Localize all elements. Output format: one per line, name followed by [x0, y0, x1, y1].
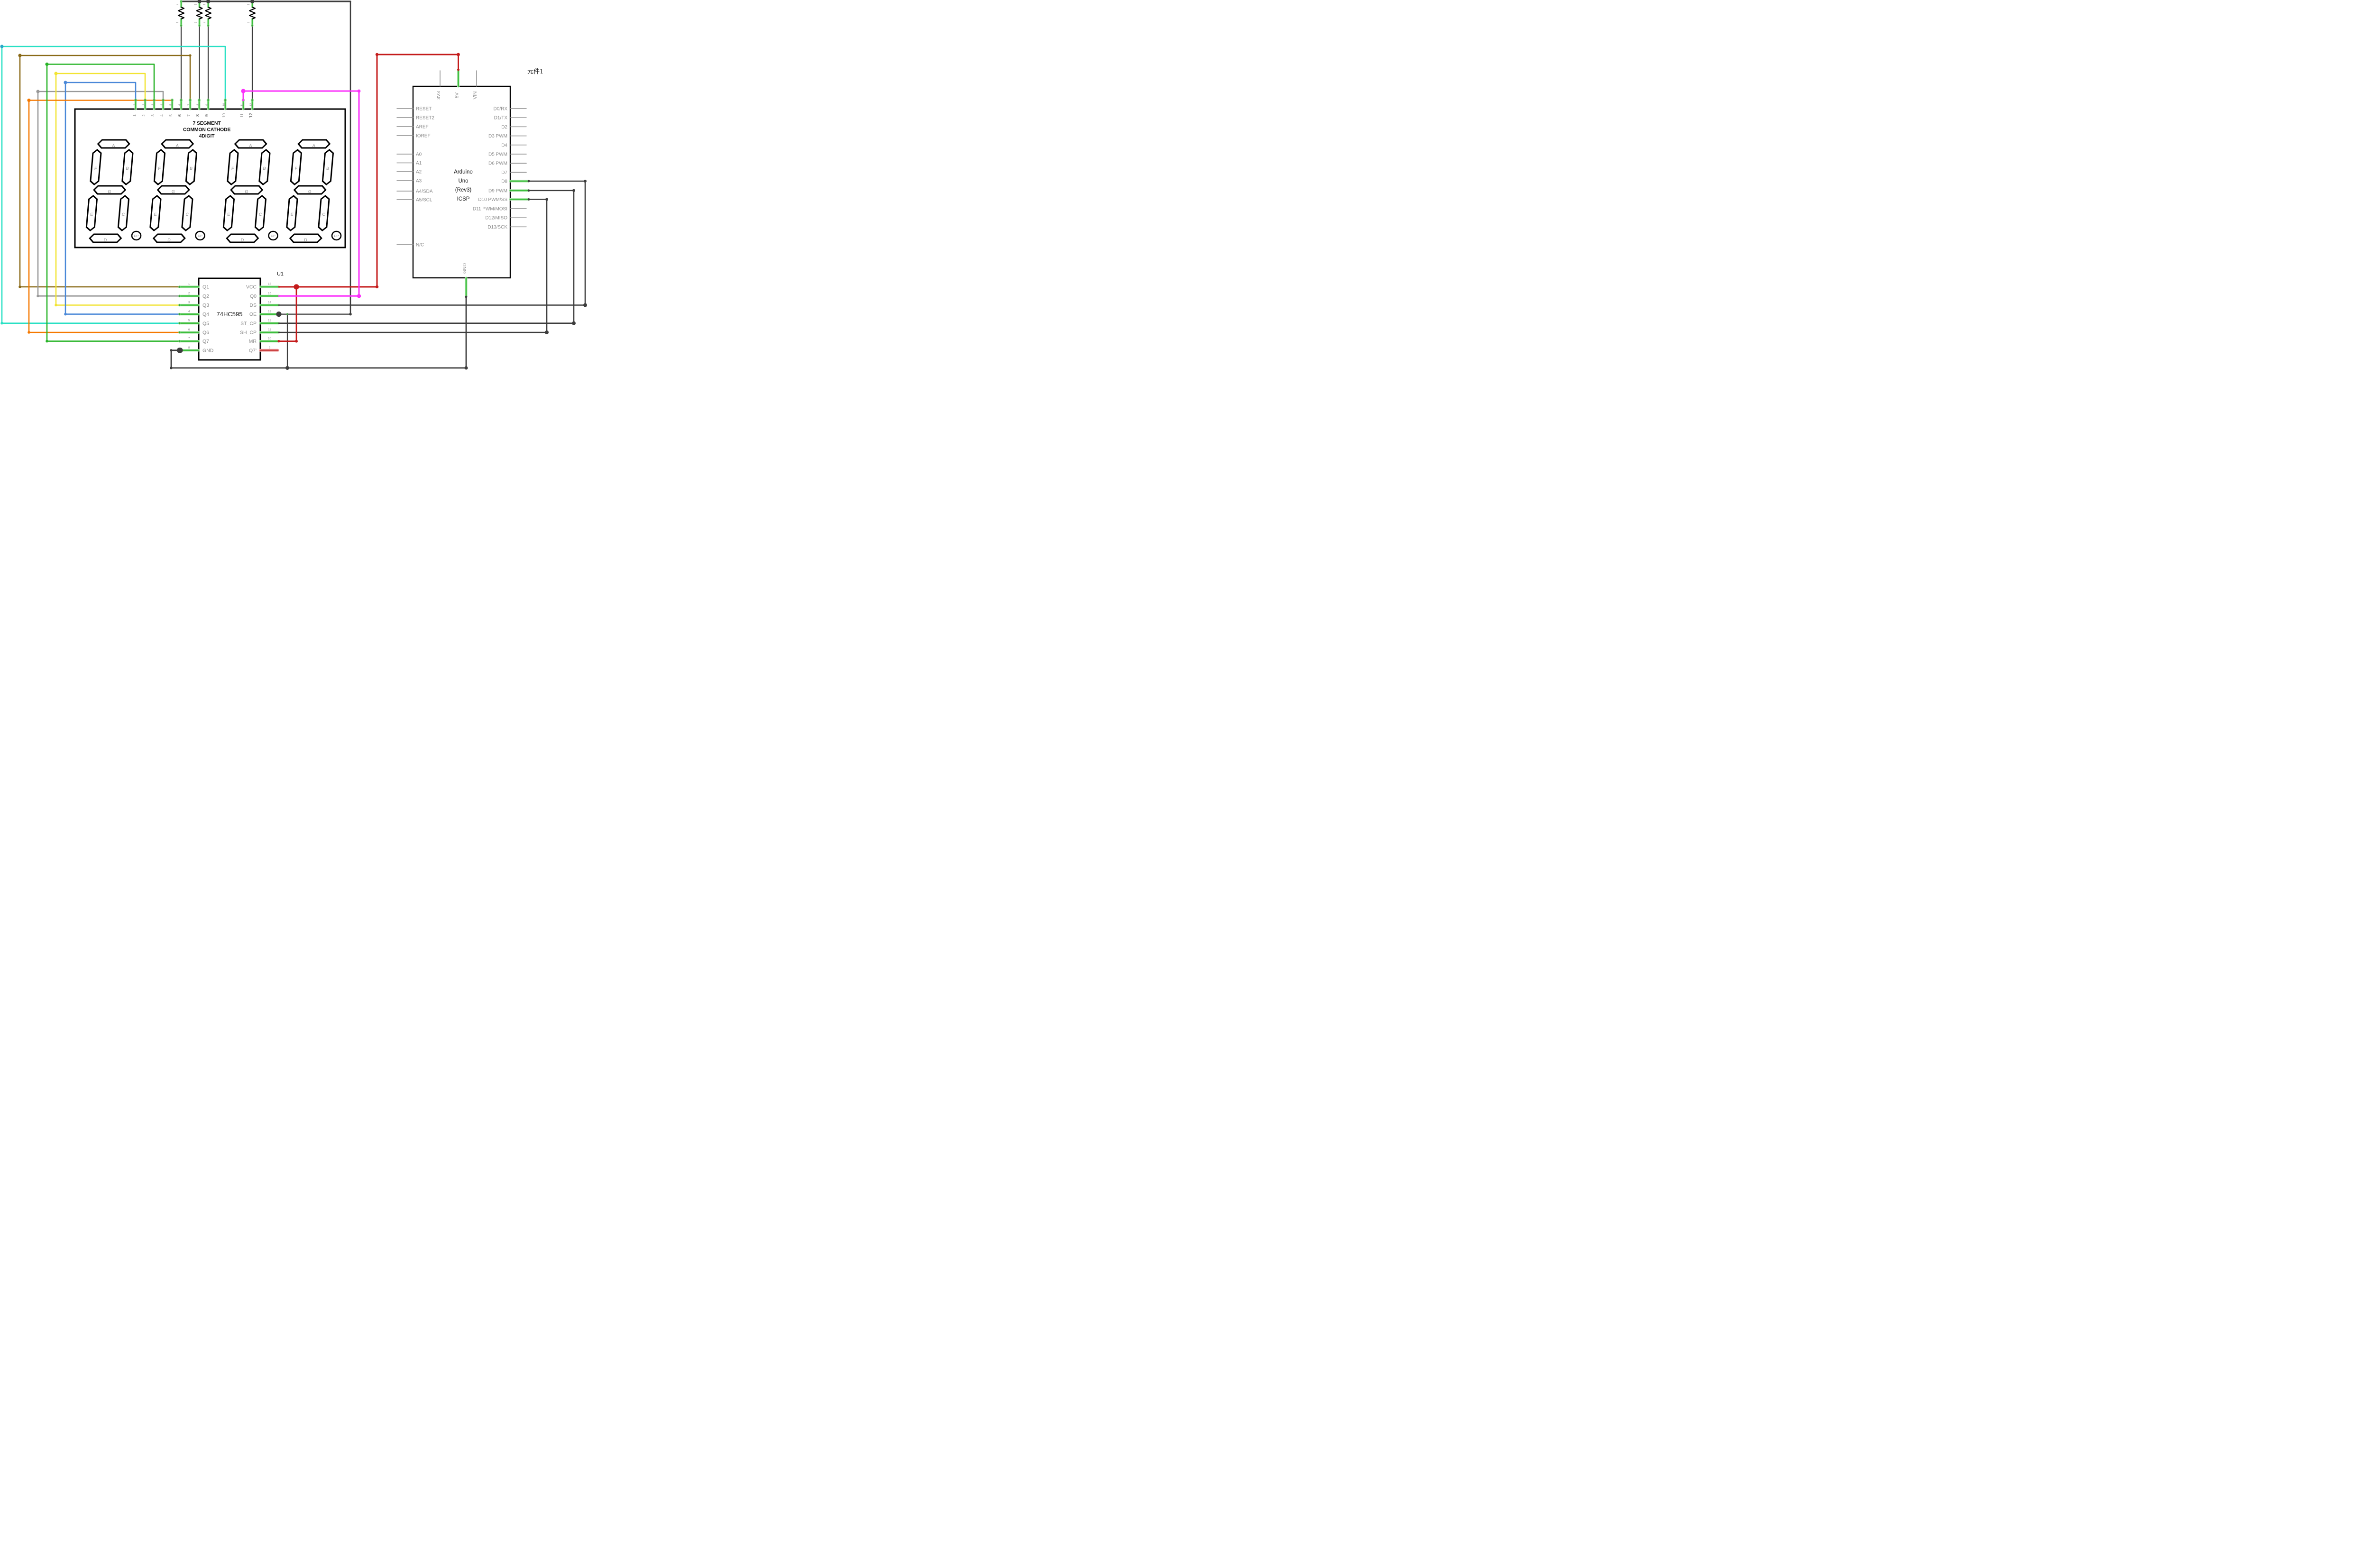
junction-dot [357, 294, 361, 298]
junction-dot [37, 295, 39, 298]
ic-pin-label-GND: GND [202, 348, 214, 353]
junction-dot [179, 322, 180, 324]
junction-dot [179, 304, 180, 306]
arduino-pin-label-D7: D7 [501, 170, 507, 175]
junction-dot [189, 54, 191, 56]
ic-pin-label-Q1: Q1 [202, 284, 209, 290]
arduino-pin-label-A5/SCL: A5/SCL [416, 198, 432, 203]
dp-label: DP [134, 235, 139, 238]
arduino-title-line: ICSP [457, 196, 470, 202]
display-title-line: COMMON CATHODE [183, 127, 230, 132]
display-pin-top-dot [153, 99, 155, 101]
junction-dot [64, 81, 67, 84]
arduino-pin-label-D0/RX: D0/RX [494, 107, 508, 112]
segment-label-B: B [263, 166, 266, 171]
ic-pin-number: 10 [268, 337, 272, 340]
ic-pin-label-Q0: Q0 [250, 293, 257, 299]
junction-dot [36, 90, 39, 93]
junction-dot [180, 0, 182, 2]
arduino-title-line: Arduino [454, 169, 473, 175]
dp-label: DP [198, 235, 202, 238]
segment-label-B: B [190, 166, 193, 171]
display-pin-number-inner: 7 [187, 114, 191, 117]
junction-dot [170, 349, 172, 351]
ic-pin-number: 8 [188, 346, 190, 349]
junction-dot [286, 313, 288, 315]
junction-dot [179, 331, 180, 333]
ic-pin-label-Q3: Q3 [202, 303, 209, 308]
junction-dot [457, 69, 459, 71]
segment-label-G: G [308, 189, 312, 194]
display-pin-top-dot [189, 99, 191, 101]
junction-dot [545, 330, 549, 334]
ic-pin-label-Q7': Q7' [249, 348, 257, 353]
arduino-pin-label-D8: D8 [501, 179, 507, 184]
junction-dot [170, 367, 173, 369]
ic-pin-label-Q2: Q2 [202, 293, 209, 299]
arduino-pin-label-A2: A2 [416, 170, 422, 175]
arduino-pin-label-A1: A1 [416, 161, 422, 166]
schematic-canvas: ABCDEFGDPABCDEFGDPABCDEFGDPABCDEFGDP 7 S… [0, 0, 593, 392]
ic-pin-number: 12 [268, 319, 272, 322]
junction-dot [464, 366, 468, 369]
display-pin-number-inner: 4 [160, 114, 164, 117]
junction-dot [572, 189, 575, 192]
resistor-pin-number: 1 [248, 3, 250, 5]
arduino-pin-label-D4: D4 [501, 143, 507, 148]
arduino-pin-label-A3: A3 [416, 179, 422, 184]
arduino-pin-label-IOREF: IOREF [416, 134, 431, 139]
ic-pin-number: 16 [268, 283, 272, 286]
dp-label: DP [271, 235, 276, 238]
junction-dot [376, 53, 378, 56]
arduino-pin-label-D2: D2 [501, 125, 507, 130]
junction-dot [295, 340, 298, 343]
junction-dot [583, 303, 587, 307]
arduino-pin-label-GND: GND [462, 263, 468, 274]
junction-dot [457, 53, 460, 56]
junction-dot [358, 90, 361, 93]
junction-dot [27, 99, 30, 102]
dp-label: DP [334, 235, 339, 238]
display-pin-top-dot [171, 99, 173, 101]
display-pin-number-inner: 12 [248, 113, 253, 118]
ic-pin-number: 4 [188, 310, 190, 313]
display-pin-top-dot [135, 99, 137, 101]
display-pin-top-dot [162, 99, 164, 101]
junction-dot [179, 313, 180, 315]
display-pin-number-inner: 8 [195, 114, 200, 117]
resistor-body[interactable] [197, 7, 202, 19]
display-pin-number-outer: 1 [133, 104, 136, 106]
arduino-pin-label-D12/MISO: D12/MISO [485, 216, 507, 221]
junction-dot [179, 295, 180, 297]
junction-dot [251, 25, 253, 26]
resistor-body[interactable] [249, 7, 255, 19]
display-pin-number-inner: 10 [222, 113, 226, 118]
display-pin-number-outer: 11 [240, 103, 244, 106]
segment-label-B: B [126, 166, 129, 171]
arduino-pin-label-D5 PWM: D5 PWM [488, 152, 507, 157]
ic-pin-number: 7 [188, 337, 190, 340]
arduino-pin-label-D11 PWM/MOSI: D11 PWM/MOSI [473, 207, 507, 212]
display-pin-number-outer: 7 [187, 104, 191, 106]
display-pin-number-outer: 4 [160, 104, 164, 106]
display-pin-number-outer: 2 [142, 104, 146, 106]
junction-dot [46, 340, 48, 343]
arduino-pin-label-AREF: AREF [416, 125, 429, 130]
segment-label-A: A [112, 143, 115, 148]
ic-pin-number: 13 [268, 310, 272, 313]
component-title: 元件1 [527, 66, 543, 75]
ic-pin-number: 9 [269, 346, 271, 349]
ic-designator: U1 [277, 271, 284, 277]
arduino-pin-label-VIN: VIN [473, 92, 478, 100]
junction-dot [277, 340, 280, 342]
arduino-pin-label-N/C: N/C [416, 243, 424, 248]
ic-pin-number: 1 [188, 283, 190, 286]
segment-label-E: E [154, 212, 157, 217]
resistor-pin-number: 1 [203, 3, 206, 5]
display-pin-number-inner: 11 [240, 113, 244, 118]
segment-label-G: G [108, 189, 111, 194]
arduino-pin-label-RESET2: RESET2 [416, 116, 434, 121]
ic-part-number: 74HC595 [217, 311, 243, 318]
ic-pin-number: 14 [268, 301, 272, 304]
arduino-pin-label-3V3: 3V3 [436, 91, 441, 100]
ic-pin-label-SH_CP: SH_CP [240, 330, 257, 336]
display-pin-number-outer: 10 [222, 103, 226, 106]
display-pin-number-inner: 3 [151, 114, 155, 117]
resistor-pin-number: 2 [195, 21, 198, 23]
ic-pin-label-Q5: Q5 [202, 321, 209, 326]
junction-dot [179, 340, 180, 342]
segment-label-E: E [90, 212, 93, 217]
arduino-pin-label-D3 PWM: D3 PWM [488, 134, 507, 139]
display-pin-number-outer: 6 [178, 104, 182, 106]
resistor-body[interactable] [178, 7, 184, 19]
junction-dot [55, 304, 57, 307]
junction-dot [572, 321, 576, 325]
resistor-pin-number: 2 [176, 3, 179, 5]
ic-pin-label-Q4: Q4 [202, 312, 209, 317]
display-pin-number-inner: 5 [169, 114, 173, 117]
ic-pin-label-ST_CP: ST_CP [240, 321, 257, 326]
resistor-pin-number: 2 [248, 21, 250, 23]
junction-dot [465, 296, 468, 298]
display-pin-number-outer: 3 [151, 104, 155, 106]
ic-pin-number: 3 [188, 301, 190, 304]
display-pin-top-dot [144, 99, 146, 101]
display-pin-number-outer: 12 [249, 103, 253, 106]
junction-dot [584, 180, 587, 183]
junction-dot [0, 45, 3, 48]
junction-dot [18, 54, 21, 57]
junction-dot [376, 285, 378, 288]
junction-dot [206, 0, 210, 3]
display-pin-top-dot [251, 99, 253, 101]
resistor-pin-number: 1 [195, 3, 198, 5]
arduino-pin-label-A4/SDA: A4/SDA [416, 189, 433, 194]
resistor-pin-number: 1 [176, 21, 179, 23]
segment-label-E: E [227, 212, 230, 217]
resistor-pin-number: 2 [203, 21, 206, 23]
arduino-pin-label-D10 PWM/SS: D10 PWM/SS [478, 197, 507, 202]
junction-dot [207, 25, 209, 26]
display-title-line: 7 SEGMENT [193, 120, 221, 126]
junction-dot [64, 313, 67, 316]
ic-pin-number: 11 [268, 328, 271, 331]
display-pin-number-inner: 1 [132, 114, 137, 117]
segment-label-A: A [249, 143, 252, 148]
arduino-pin-label-D1/TX: D1/TX [494, 116, 508, 121]
ic-pin-number: 2 [188, 292, 190, 295]
segment-label-B: B [326, 166, 330, 171]
junction-dot [199, 25, 200, 26]
resistor-body[interactable] [205, 7, 211, 19]
junction-dot [242, 99, 245, 101]
junction-dot [349, 313, 352, 316]
display-pin-top-dot [180, 99, 182, 101]
display-pin-number-inner: 9 [204, 114, 209, 117]
display-pin-number-outer: 5 [169, 104, 173, 106]
display-pin-top-dot [224, 99, 226, 101]
display-pin-top-dot [198, 99, 200, 101]
display-pin-top-dot [207, 99, 209, 101]
ic-pin-label-DS: DS [249, 303, 257, 308]
gnd-lead-junction-dot [177, 348, 182, 353]
junction-dot [241, 89, 245, 93]
display-pin-number-outer: 9 [205, 104, 209, 106]
junction-dot [18, 285, 21, 288]
junction-dot [250, 0, 254, 3]
segment-label-G: G [245, 189, 248, 194]
arduino-pin-label-RESET: RESET [416, 107, 432, 112]
junction-dot [294, 284, 299, 289]
junction-dot [528, 180, 530, 183]
junction-dot [180, 25, 182, 26]
segment-label-A: A [175, 143, 179, 148]
arduino-title-line: (Rev3) [455, 187, 472, 193]
junction-dot [197, 0, 201, 3]
arduino-pin-label-A0: A0 [416, 152, 422, 157]
arduino-pin-label-D9 PWM: D9 PWM [488, 188, 507, 193]
junction-dot [545, 198, 548, 201]
ic-pin-label-Q7: Q7 [202, 339, 209, 344]
ic-pin-number: 5 [188, 319, 190, 322]
segment-label-A: A [312, 143, 315, 148]
arduino-pin-label-D6 PWM: D6 PWM [488, 161, 507, 166]
junction-dot [179, 286, 180, 287]
ic-pin-label-MR: MR [249, 339, 257, 344]
display-pin-number-inner: 2 [142, 114, 146, 117]
display-pin-number-outer: 8 [196, 104, 200, 106]
ic-pin-number: 6 [188, 328, 190, 331]
display-pin-number-inner: 6 [177, 114, 182, 117]
junction-dot [276, 312, 281, 317]
junction-dot [528, 189, 530, 192]
junction-dot [45, 63, 48, 66]
ic-pin-number: 15 [268, 292, 272, 295]
arduino-pin-label-5V: 5V [455, 92, 460, 99]
schematic-svg: ABCDEFGDPABCDEFGDPABCDEFGDPABCDEFGDP 7 S… [0, 0, 593, 392]
arduino-title-line: Uno [458, 178, 468, 184]
junction-dot [28, 331, 30, 334]
display-title-line: 4DIGIT [199, 133, 215, 139]
ic-pin-label-Q6: Q6 [202, 330, 209, 336]
segment-label-G: G [171, 189, 175, 194]
junction-dot [285, 366, 289, 370]
arduino-pin-label-D13/SCK: D13/SCK [487, 225, 507, 230]
junction-dot [528, 198, 530, 201]
junction-dot [0, 322, 3, 325]
ic-pin-label-OE: OE [249, 312, 257, 317]
segment-label-E: E [290, 212, 294, 217]
junction-dot [54, 72, 57, 75]
ic-pin-label-VCC: VCC [246, 284, 257, 290]
